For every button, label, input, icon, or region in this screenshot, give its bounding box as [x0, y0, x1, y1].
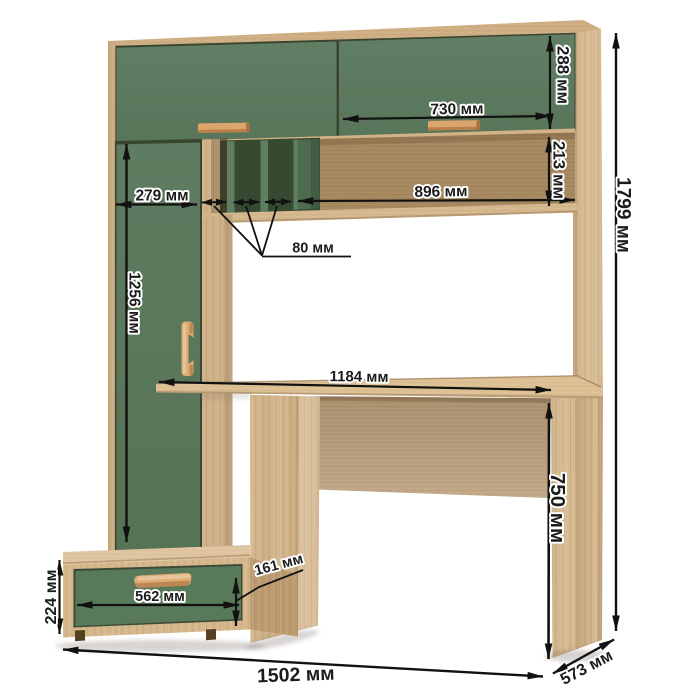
- svg-text:279 мм: 279 мм: [135, 188, 188, 205]
- svg-text:730 мм: 730 мм: [430, 101, 483, 119]
- svg-text:1184 мм: 1184 мм: [329, 368, 388, 386]
- svg-text:750 мм: 750 мм: [546, 473, 569, 543]
- svg-text:288 мм: 288 мм: [554, 46, 573, 104]
- svg-text:1256 мм: 1256 мм: [126, 272, 143, 334]
- svg-text:1502 мм: 1502 мм: [257, 663, 335, 688]
- svg-text:224 мм: 224 мм: [43, 570, 60, 625]
- svg-text:213 мм: 213 мм: [550, 141, 569, 199]
- svg-text:562 мм: 562 мм: [135, 589, 185, 605]
- svg-text:1799 мм: 1799 мм: [613, 177, 634, 253]
- svg-text:80 мм: 80 мм: [292, 241, 334, 257]
- svg-text:896 мм: 896 мм: [414, 183, 467, 201]
